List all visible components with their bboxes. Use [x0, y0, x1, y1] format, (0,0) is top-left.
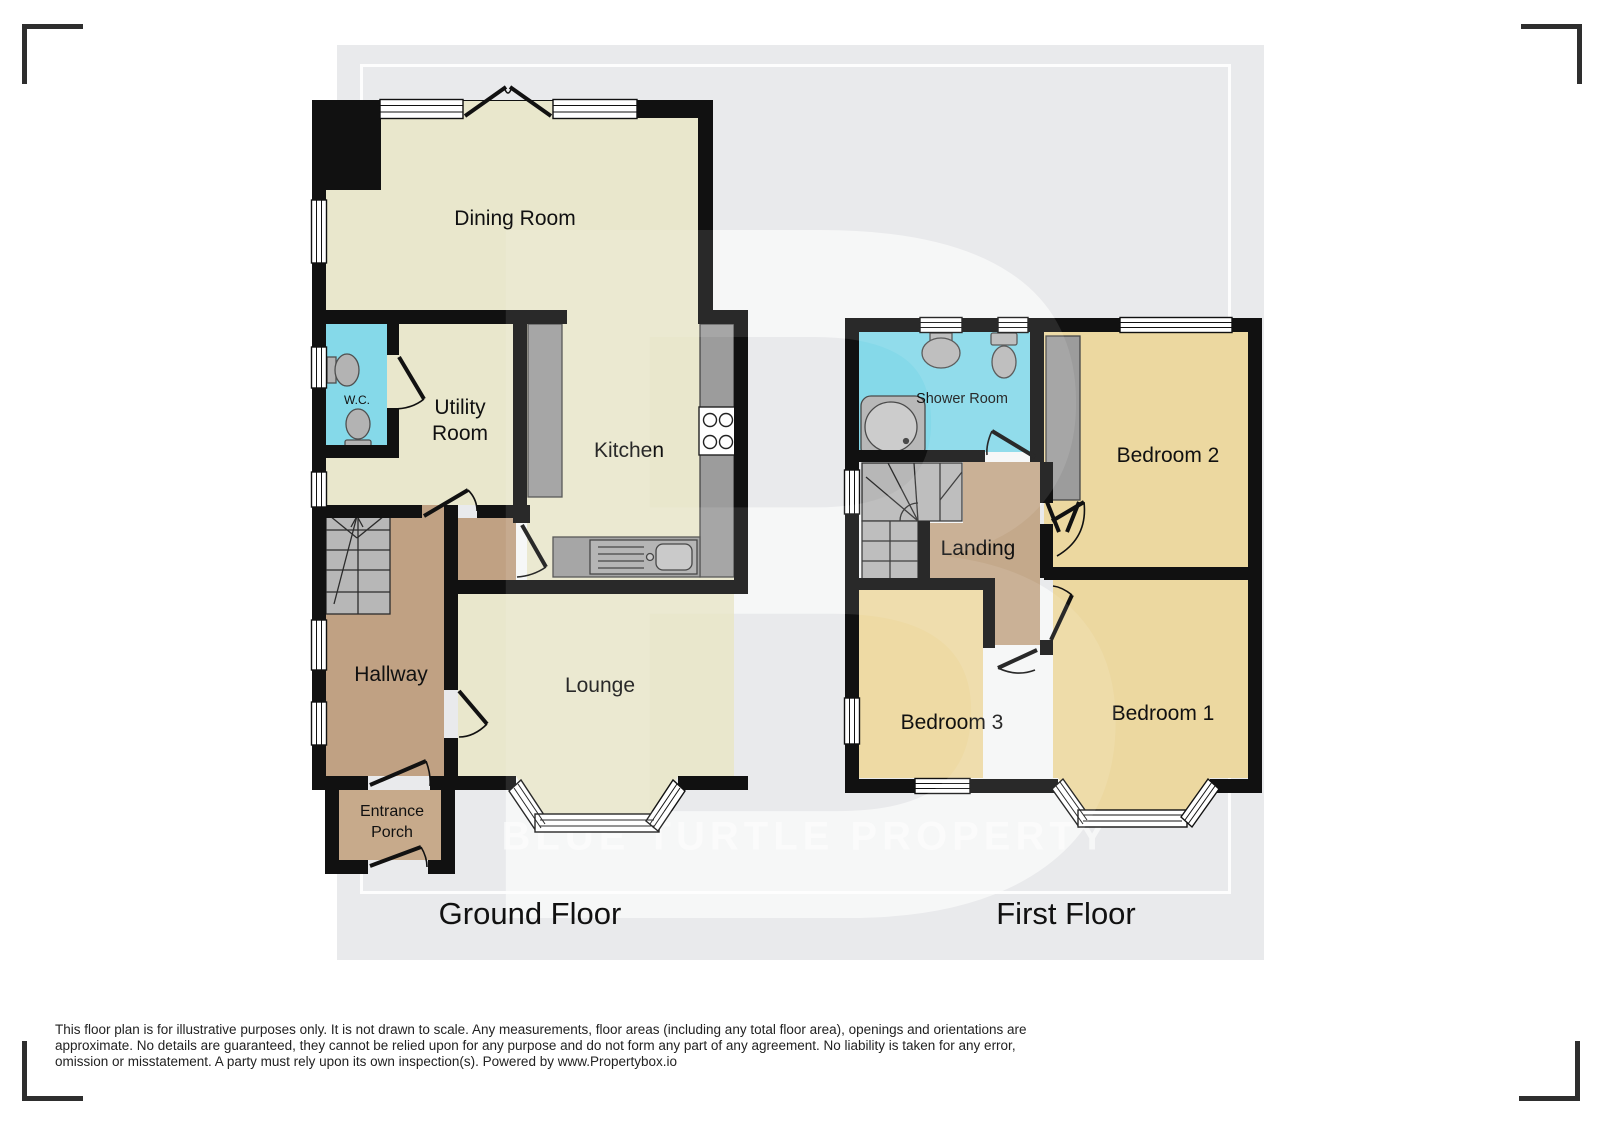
- corner-mark-bottom-left: [22, 1041, 83, 1101]
- corner-mark-top-left: [22, 24, 83, 84]
- room-label-lounge: Lounge: [565, 674, 635, 697]
- room-label-wc: W.C.: [344, 393, 370, 407]
- room-label-bedroom2: Bedroom 2: [1117, 444, 1220, 467]
- room-label-shower: Shower Room: [916, 391, 1008, 407]
- room-label-kitchen: Kitchen: [594, 439, 664, 462]
- room-label-hallway: Hallway: [354, 663, 428, 686]
- room-label-porch-1: Entrance: [360, 803, 424, 820]
- room-label-dining: Dining Room: [454, 207, 575, 230]
- corner-mark-top-right: [1521, 24, 1582, 84]
- page-title-first-floor: First Floor: [906, 896, 1226, 932]
- bedroom3-room: [859, 590, 983, 778]
- room-label-utility-1: Utility: [434, 396, 486, 419]
- shower-toilet-icon: [991, 333, 1017, 378]
- bedroom1-room: [1053, 580, 1248, 778]
- page-title-ground-floor: Ground Floor: [370, 896, 690, 932]
- room-label-landing: Landing: [941, 537, 1016, 560]
- hob-icon: [699, 407, 737, 455]
- floorplan-canvas: Dining Room W.C. Utility Room Kitchen Ha…: [300, 80, 1275, 880]
- floorplan-ground: Dining Room W.C. Utility Room Kitchen Ha…: [312, 87, 749, 874]
- corner-mark-bottom-right: [1519, 1041, 1580, 1101]
- room-label-bedroom1: Bedroom 1: [1112, 702, 1215, 725]
- kitchen-unit: [528, 324, 562, 497]
- room-label-utility-2: Room: [432, 422, 488, 445]
- disclaimer-text: This floor plan is for illustrative purp…: [55, 1022, 1195, 1070]
- kitchen-sink-icon: [590, 540, 697, 574]
- floorplan-first: Shower Room Bedroom 2 Landing Bedroom 3 …: [845, 318, 1263, 828]
- disclaimer-line-3: omission or misstatement. A party must r…: [55, 1054, 1195, 1070]
- stairs-icon: [326, 508, 390, 614]
- room-label-bedroom3: Bedroom 3: [901, 711, 1004, 734]
- disclaimer-line-2: approximate. No details are guaranteed, …: [55, 1038, 1195, 1054]
- disclaimer-line-1: This floor plan is for illustrative purp…: [55, 1022, 1195, 1038]
- room-label-porch-2: Porch: [371, 824, 413, 841]
- wc-sink-icon: [327, 354, 359, 386]
